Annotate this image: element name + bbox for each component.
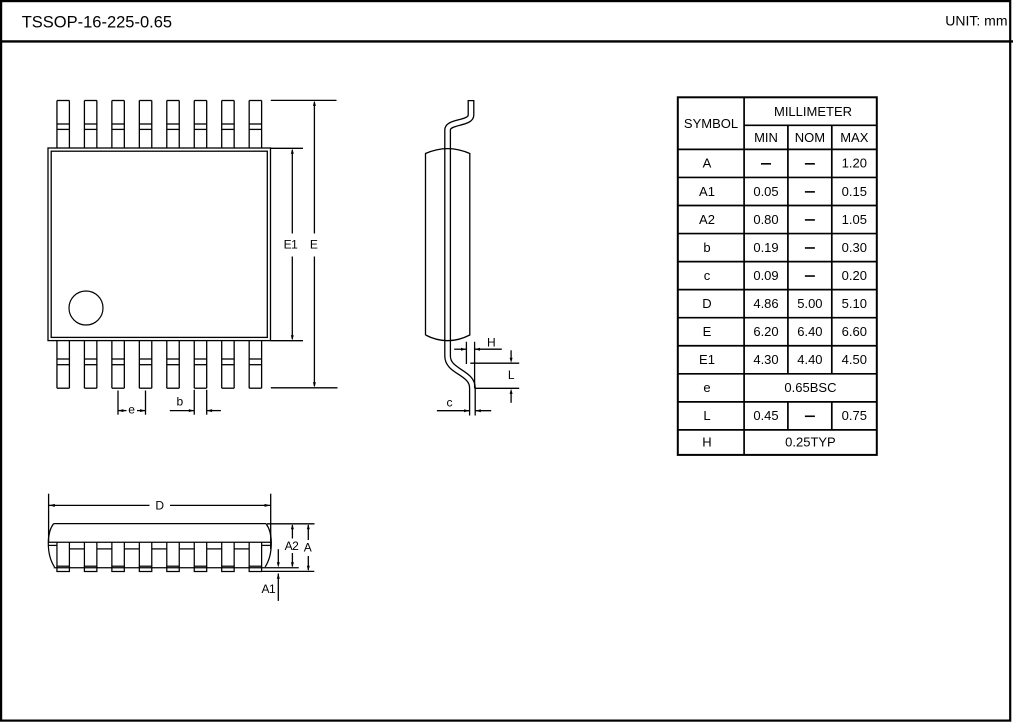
svg-text:0.30: 0.30: [842, 240, 867, 255]
svg-text:E: E: [310, 238, 318, 252]
svg-text:A: A: [304, 541, 312, 555]
svg-text:0.65BSC: 0.65BSC: [784, 380, 836, 395]
svg-text:4.30: 4.30: [753, 352, 778, 367]
svg-text:c: c: [447, 395, 453, 409]
svg-text:4.40: 4.40: [797, 352, 822, 367]
svg-text:A: A: [703, 156, 712, 171]
svg-text:MAX: MAX: [840, 130, 869, 145]
svg-text:TSSOP-16-225-0.65: TSSOP-16-225-0.65: [22, 14, 172, 32]
svg-text:4.50: 4.50: [842, 352, 867, 367]
svg-text:5.00: 5.00: [797, 296, 822, 311]
svg-text:6.40: 6.40: [797, 324, 822, 339]
svg-text:E: E: [703, 324, 712, 339]
svg-text:H: H: [702, 435, 711, 450]
svg-text:1.20: 1.20: [842, 156, 867, 171]
svg-text:NOM: NOM: [795, 130, 825, 145]
svg-text:e: e: [703, 380, 710, 395]
svg-text:0.05: 0.05: [753, 184, 778, 199]
svg-text:L: L: [508, 368, 515, 382]
svg-text:0.19: 0.19: [753, 240, 778, 255]
svg-text:SYMBOL: SYMBOL: [684, 116, 738, 131]
svg-text:E1: E1: [699, 352, 715, 367]
svg-text:MILLIMETER: MILLIMETER: [774, 104, 852, 119]
svg-text:5.10: 5.10: [842, 296, 867, 311]
svg-text:0.20: 0.20: [842, 268, 867, 283]
svg-text:MIN: MIN: [754, 130, 778, 145]
svg-text:A1: A1: [699, 184, 715, 199]
svg-text:D: D: [702, 296, 711, 311]
svg-text:0.45: 0.45: [753, 408, 778, 423]
svg-text:b: b: [703, 240, 710, 255]
svg-text:6.20: 6.20: [753, 324, 778, 339]
svg-text:e: e: [128, 402, 135, 416]
svg-text:H: H: [487, 335, 496, 349]
svg-text:UNIT: mm: UNIT: mm: [945, 13, 1007, 29]
svg-text:A2: A2: [699, 212, 715, 227]
svg-text:0.80: 0.80: [753, 212, 778, 227]
svg-text:0.25TYP: 0.25TYP: [785, 435, 836, 450]
svg-text:0.09: 0.09: [753, 268, 778, 283]
svg-text:L: L: [703, 408, 710, 423]
svg-text:6.60: 6.60: [842, 324, 867, 339]
svg-text:0.75: 0.75: [842, 408, 867, 423]
svg-text:4.86: 4.86: [753, 296, 778, 311]
svg-text:b: b: [176, 395, 183, 409]
svg-text:E1: E1: [284, 238, 299, 252]
svg-text:0.15: 0.15: [842, 184, 867, 199]
svg-text:A1: A1: [262, 582, 277, 596]
svg-text:A2: A2: [285, 539, 300, 553]
svg-text:D: D: [155, 499, 164, 513]
svg-text:1.05: 1.05: [842, 212, 867, 227]
svg-text:c: c: [704, 268, 711, 283]
